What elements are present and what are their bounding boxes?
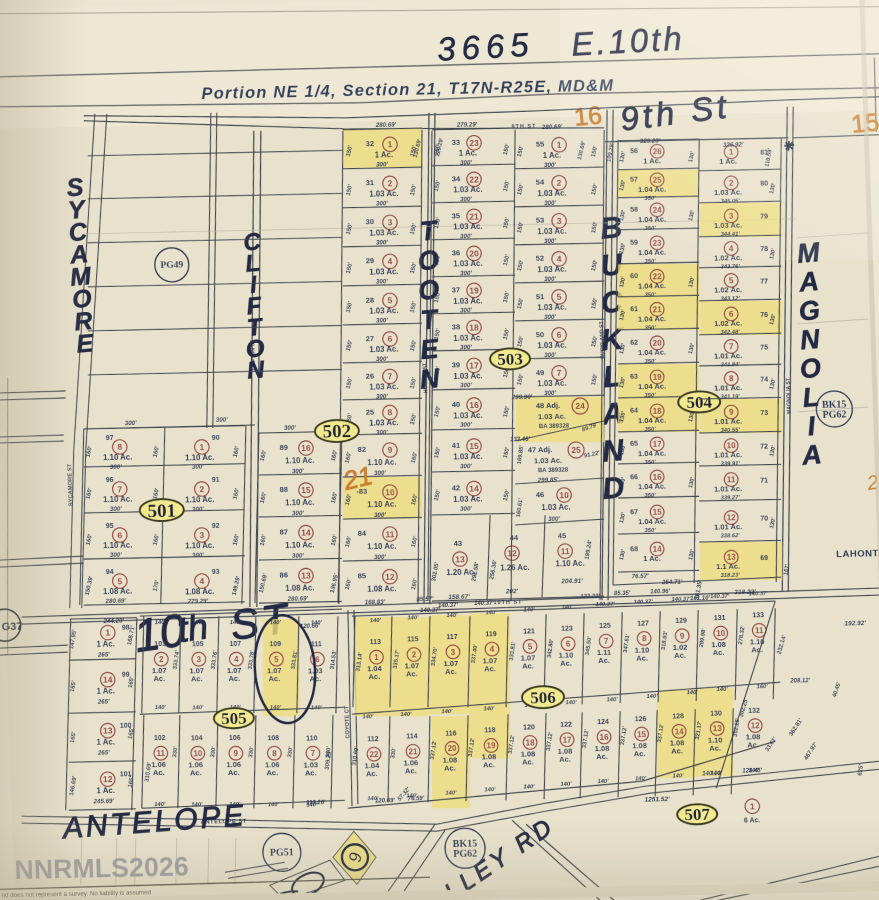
svg-text:341.19': 341.19': [721, 394, 741, 400]
svg-text:30: 30: [366, 217, 375, 226]
svg-text:1 Ac.: 1 Ac.: [375, 150, 394, 159]
svg-text:504: 504: [686, 393, 713, 413]
svg-text:10: 10: [193, 749, 203, 758]
svg-text:1.01 Ac.: 1.01 Ac.: [714, 417, 742, 427]
svg-text:1.03 Ac.: 1.03 Ac.: [541, 503, 570, 513]
svg-text:6: 6: [557, 330, 562, 340]
svg-text:108: 108: [267, 735, 279, 742]
svg-text:G: G: [797, 295, 821, 327]
svg-text:1.08 Ac.: 1.08 Ac.: [367, 584, 396, 594]
svg-text:7: 7: [311, 749, 316, 758]
svg-text:300': 300': [544, 314, 557, 321]
svg-text:7: 7: [604, 637, 609, 646]
svg-text:300': 300': [110, 506, 123, 513]
svg-text:Ac.: Ac.: [191, 674, 203, 683]
svg-text:109: 109: [269, 641, 281, 648]
svg-text:10: 10: [385, 487, 395, 497]
svg-text:1: 1: [750, 801, 755, 811]
svg-text:1.03 Ac.: 1.03 Ac.: [453, 259, 482, 269]
svg-text:Ac.: Ac.: [153, 768, 165, 777]
svg-text:88: 88: [279, 485, 288, 494]
svg-text:Ac.: Ac.: [596, 752, 608, 761]
svg-text:124: 124: [597, 719, 609, 726]
svg-text:140': 140': [606, 697, 618, 703]
svg-text:1.03 Ac.: 1.03 Ac.: [369, 189, 398, 199]
svg-text:9: 9: [680, 632, 685, 641]
svg-text:505: 505: [221, 709, 247, 729]
svg-text:21: 21: [408, 747, 418, 756]
svg-text:61: 61: [630, 306, 638, 313]
svg-text:350': 350': [644, 528, 656, 534]
svg-text:62: 62: [630, 340, 638, 347]
svg-text:279.29': 279.29': [187, 598, 209, 605]
svg-text:11: 11: [560, 546, 570, 556]
svg-text:1.03 Ac.: 1.03 Ac.: [369, 418, 398, 428]
svg-text:PG62: PG62: [822, 409, 846, 420]
svg-text:25: 25: [366, 407, 375, 416]
svg-text:Ac.: Ac.: [484, 664, 496, 673]
svg-text:53: 53: [536, 216, 545, 225]
svg-text:140.37': 140.37': [749, 591, 769, 597]
svg-text:16: 16: [653, 473, 663, 482]
svg-text:140': 140': [370, 618, 382, 624]
svg-text:1.01 Ac.: 1.01 Ac.: [714, 484, 742, 494]
svg-text:300': 300': [460, 463, 473, 470]
svg-text:140': 140': [484, 787, 496, 793]
svg-text:113: 113: [370, 639, 382, 646]
svg-text:15: 15: [469, 441, 479, 451]
svg-text:18: 18: [526, 738, 536, 747]
svg-text:COYOTE CT: COYOTE CT: [344, 705, 351, 738]
svg-text:343.76': 343.76': [721, 264, 741, 270]
svg-text:105: 105: [192, 641, 204, 648]
svg-text:122: 122: [560, 721, 572, 728]
svg-text:41: 41: [452, 441, 461, 450]
svg-text:8: 8: [729, 374, 734, 383]
svg-text:13: 13: [727, 553, 737, 562]
svg-text:127: 127: [637, 620, 649, 627]
svg-text:300': 300': [544, 200, 557, 207]
svg-text:35: 35: [452, 211, 461, 220]
svg-text:300': 300': [460, 344, 473, 351]
svg-text:1 Ac.: 1 Ac.: [96, 786, 115, 795]
svg-text:1: 1: [199, 442, 204, 452]
svg-text:350': 350': [645, 292, 657, 298]
svg-text:7: 7: [387, 371, 392, 381]
svg-text:300': 300': [192, 506, 205, 513]
svg-text:300': 300': [284, 425, 297, 432]
svg-text:13: 13: [301, 571, 311, 581]
svg-text:300': 300': [376, 278, 389, 285]
svg-text:119: 119: [485, 631, 497, 638]
svg-text:11: 11: [156, 749, 165, 758]
svg-text:300': 300': [460, 270, 473, 277]
svg-text:1.04 Ac.: 1.04 Ac.: [638, 482, 666, 492]
svg-text:116: 116: [445, 730, 457, 737]
svg-text:1251.52': 1251.52': [644, 796, 670, 804]
svg-text:85.57': 85.57': [416, 596, 434, 603]
svg-text:19: 19: [653, 373, 663, 382]
svg-text:339.27': 339.27': [721, 495, 741, 501]
svg-text:1.10 Ac.: 1.10 Ac.: [103, 453, 132, 463]
svg-text:140.37': 140.37': [420, 608, 441, 614]
svg-text:19: 19: [486, 741, 496, 750]
svg-text:1.04 Ac.: 1.04 Ac.: [638, 449, 666, 459]
svg-text:1.04 Ac.: 1.04 Ac.: [638, 517, 666, 527]
svg-text:1 Ac.: 1 Ac.: [543, 151, 562, 160]
svg-text:300': 300': [544, 162, 557, 169]
svg-text:13: 13: [103, 726, 113, 736]
svg-text:140': 140': [565, 700, 577, 706]
svg-text:1.10 Ac.: 1.10 Ac.: [555, 559, 584, 569]
svg-text:O: O: [798, 352, 822, 384]
svg-text:300': 300': [544, 352, 557, 359]
svg-text:10: 10: [716, 629, 726, 638]
svg-text:1: 1: [387, 139, 392, 149]
svg-text:350': 350': [644, 493, 656, 499]
svg-text:1 Ac.: 1 Ac.: [643, 554, 661, 563]
svg-text:140': 140': [646, 694, 658, 700]
svg-text:140': 140': [270, 620, 282, 626]
svg-text:300': 300': [460, 196, 473, 203]
svg-text:93: 93: [212, 569, 220, 576]
svg-text:300': 300': [292, 552, 305, 559]
svg-text:104: 104: [191, 735, 203, 742]
svg-text:Ac.: Ac.: [560, 659, 572, 668]
svg-text:BA 389328: BA 389328: [538, 468, 569, 475]
svg-text:1.01 Ac.: 1.01 Ac.: [714, 450, 742, 460]
svg-text:72: 72: [760, 443, 768, 450]
svg-text:11: 11: [727, 475, 736, 484]
svg-text:34: 34: [452, 174, 461, 183]
svg-text:15: 15: [301, 485, 311, 495]
svg-text:A: A: [797, 266, 820, 298]
svg-text:70: 70: [760, 515, 768, 522]
svg-text:32: 32: [366, 139, 375, 148]
svg-text:17: 17: [469, 360, 479, 370]
svg-text:280.69': 280.69': [375, 122, 397, 129]
svg-text:86: 86: [280, 571, 289, 580]
svg-text:300': 300': [374, 554, 387, 561]
svg-text:82: 82: [358, 445, 367, 454]
svg-text:74: 74: [760, 376, 768, 383]
svg-text:21: 21: [653, 305, 663, 314]
svg-text:7: 7: [557, 368, 562, 378]
svg-text:342.48': 342.48': [720, 330, 740, 336]
svg-text:300': 300': [376, 356, 389, 363]
svg-text:67: 67: [630, 509, 638, 516]
svg-text:Ac.: Ac.: [405, 766, 417, 775]
svg-text:122.23': 122.23': [580, 594, 601, 600]
svg-text:343.12': 343.12': [720, 296, 740, 302]
svg-text:1.10 Ac.: 1.10 Ac.: [103, 541, 132, 551]
svg-text:1.04 Ac.: 1.04 Ac.: [638, 382, 666, 392]
svg-text:4: 4: [199, 576, 204, 586]
svg-text:115: 115: [407, 636, 419, 643]
svg-text:22: 22: [653, 272, 663, 281]
svg-text:1.10 Ac.: 1.10 Ac.: [285, 498, 314, 508]
svg-text:140.37': 140.37': [710, 594, 730, 600]
svg-text:97: 97: [106, 435, 114, 442]
svg-text:24: 24: [575, 401, 585, 411]
svg-text:300': 300': [292, 468, 305, 475]
svg-text:Ac.: Ac.: [636, 653, 648, 662]
svg-text:Ac.: Ac.: [598, 656, 610, 665]
svg-text:84: 84: [358, 529, 367, 538]
svg-text:208.12': 208.12': [789, 678, 811, 684]
svg-text:20: 20: [653, 339, 663, 348]
svg-text:1.03 Ac.: 1.03 Ac.: [369, 345, 398, 355]
svg-text:1.03 Ac.: 1.03 Ac.: [537, 303, 566, 313]
svg-text:244.29': 244.29': [102, 618, 124, 625]
svg-text:5: 5: [528, 642, 533, 651]
svg-text:54: 54: [536, 178, 545, 187]
svg-text:85.35': 85.35': [614, 591, 631, 597]
svg-text:1.03 Ac.: 1.03 Ac.: [453, 494, 482, 504]
svg-text:17: 17: [562, 735, 572, 744]
svg-text:9: 9: [233, 749, 238, 758]
svg-text:1.08 Ac.: 1.08 Ac.: [285, 583, 314, 593]
svg-text:338.62': 338.62': [720, 533, 740, 539]
svg-text:300': 300': [110, 552, 123, 559]
svg-text:350': 350': [644, 427, 656, 433]
svg-text:42: 42: [452, 483, 461, 492]
svg-text:1.01 Ac.: 1.01 Ac.: [714, 383, 742, 393]
svg-text:280.69': 280.69': [287, 595, 309, 602]
svg-text:265': 265': [97, 699, 111, 706]
svg-text:107: 107: [229, 641, 241, 648]
svg-text:1.04 Ac.: 1.04 Ac.: [638, 281, 666, 291]
svg-text:5: 5: [387, 295, 392, 305]
svg-text:119.26': 119.26': [306, 800, 326, 806]
svg-text:1.03 Ac.: 1.03 Ac.: [453, 452, 482, 462]
svg-text:300': 300': [192, 464, 205, 471]
svg-text:133.46': 133.46': [510, 437, 531, 443]
svg-text:299.90': 299.90': [511, 394, 533, 401]
svg-text:1: 1: [374, 653, 379, 662]
svg-text:279.29': 279.29': [456, 122, 478, 129]
svg-text:73: 73: [760, 410, 768, 417]
svg-text:1.10 Ac.: 1.10 Ac.: [185, 541, 214, 551]
svg-text:300': 300': [460, 382, 473, 389]
svg-text:3: 3: [387, 217, 392, 227]
svg-text:350': 350': [645, 325, 657, 331]
svg-text:192.92': 192.92': [844, 620, 866, 627]
svg-text:506: 506: [530, 688, 556, 708]
svg-text:1.03 Ac.: 1.03 Ac.: [453, 333, 482, 343]
svg-text:55: 55: [536, 140, 545, 149]
svg-text:3665: 3665: [436, 25, 536, 67]
svg-text:94: 94: [106, 569, 114, 576]
svg-text:339.91': 339.91': [721, 461, 741, 467]
svg-text:14: 14: [103, 675, 113, 685]
svg-text:245.69': 245.69': [92, 798, 114, 805]
svg-text:29: 29: [366, 256, 375, 265]
svg-text:140': 140': [155, 620, 167, 626]
svg-text:118: 118: [484, 727, 496, 734]
svg-text:501: 501: [147, 500, 176, 522]
svg-text:47 Adj.: 47 Adj.: [528, 445, 553, 454]
svg-text:6: 6: [729, 310, 734, 319]
svg-text:102: 102: [154, 735, 166, 742]
svg-text:76: 76: [760, 312, 768, 319]
svg-text:132: 132: [748, 708, 760, 715]
svg-text:Ac.: Ac.: [228, 768, 240, 777]
svg-text:1 Ac.: 1 Ac.: [459, 149, 478, 158]
svg-text:140.37': 140.37': [671, 597, 691, 603]
svg-text:1.10 Ac.: 1.10 Ac.: [285, 540, 314, 550]
svg-text:131: 131: [714, 615, 726, 622]
svg-text:6: 6: [117, 530, 122, 540]
svg-text:106: 106: [229, 735, 241, 742]
svg-text:300': 300': [376, 393, 389, 400]
svg-text:1.03 Ac.: 1.03 Ac.: [369, 382, 398, 392]
svg-text:1.03 Ac.: 1.03 Ac.: [534, 456, 562, 466]
svg-text:27: 27: [366, 334, 375, 343]
svg-text:68: 68: [630, 546, 638, 553]
svg-text:45: 45: [558, 531, 567, 540]
svg-text:1.04 Ac.: 1.04 Ac.: [638, 416, 666, 426]
svg-text:1.03 Ac.: 1.03 Ac.: [538, 412, 566, 422]
svg-text:1.10 Ac.: 1.10 Ac.: [285, 456, 314, 466]
svg-text:A: A: [800, 439, 823, 471]
svg-text:51: 51: [536, 292, 545, 301]
svg-text:140.37': 140.37': [633, 599, 653, 605]
svg-text:46: 46: [536, 490, 545, 499]
svg-text:117: 117: [446, 634, 458, 641]
svg-text:1.10 Ac.: 1.10 Ac.: [367, 458, 396, 468]
svg-text:350': 350': [644, 460, 656, 466]
svg-text:125: 125: [599, 623, 611, 630]
svg-text:63: 63: [630, 374, 638, 381]
svg-text:1.03 Ac.: 1.03 Ac.: [369, 228, 398, 238]
svg-text:52: 52: [536, 254, 545, 263]
svg-text:350': 350': [645, 359, 657, 365]
svg-text:5: 5: [117, 576, 122, 586]
svg-text:140': 140': [407, 615, 419, 621]
svg-text:140': 140': [560, 782, 572, 788]
svg-text:2: 2: [412, 650, 417, 659]
svg-text:25: 25: [571, 445, 581, 455]
svg-text:2: 2: [199, 484, 204, 494]
svg-text:2: 2: [387, 178, 392, 188]
svg-text:120: 120: [523, 724, 535, 731]
svg-text:1.1 Ac.: 1.1 Ac.: [716, 562, 740, 571]
svg-text:15: 15: [653, 508, 663, 517]
svg-text:1: 1: [105, 628, 110, 638]
svg-text:76.59': 76.59': [408, 796, 425, 802]
svg-text:123: 123: [561, 626, 573, 633]
svg-text:140': 140': [686, 690, 698, 696]
svg-text:300': 300': [376, 429, 389, 436]
svg-text:1.02 Ac.: 1.02 Ac.: [714, 285, 742, 295]
svg-text:1.20 Ac.: 1.20 Ac.: [446, 568, 475, 578]
svg-text:300': 300': [460, 160, 473, 167]
svg-text:Ac.: Ac.: [266, 768, 278, 777]
svg-text:300': 300': [110, 464, 123, 471]
svg-text:140': 140': [716, 687, 728, 693]
svg-text:300': 300': [460, 307, 473, 314]
svg-text:LAHONTAN: LAHONTAN: [836, 548, 879, 560]
svg-text:140': 140': [445, 790, 457, 796]
svg-text:66: 66: [630, 474, 638, 481]
svg-text:N: N: [246, 356, 267, 385]
svg-text:265': 265': [97, 651, 111, 658]
svg-text:Ac.: Ac.: [406, 669, 418, 678]
svg-text:Ac.: Ac.: [444, 763, 456, 772]
svg-text:140.37': 140.37': [474, 601, 495, 607]
svg-text:L: L: [801, 382, 820, 413]
svg-text:23: 23: [469, 138, 479, 148]
svg-text:11: 11: [385, 529, 395, 539]
svg-text:300': 300': [376, 200, 389, 207]
svg-text:Ac.: Ac.: [709, 743, 721, 752]
svg-text:Ac.: Ac.: [368, 672, 380, 681]
svg-text:1.10 Ac.: 1.10 Ac.: [185, 495, 214, 505]
svg-text:64: 64: [630, 408, 638, 415]
svg-text:503: 503: [497, 350, 523, 370]
svg-text:300': 300': [125, 420, 138, 427]
svg-text:168.83': 168.83': [365, 599, 386, 606]
svg-text:1.03 Ac.: 1.03 Ac.: [453, 371, 482, 381]
svg-text:1.03 Ac.: 1.03 Ac.: [453, 222, 482, 232]
svg-text:6: 6: [387, 334, 392, 344]
svg-text:65: 65: [630, 441, 638, 448]
svg-text:265': 265': [97, 750, 111, 757]
svg-text:350': 350': [644, 393, 656, 399]
svg-text:36: 36: [452, 248, 461, 257]
svg-text:140.10': 140.10': [702, 771, 723, 777]
svg-text:1.08 Ac.: 1.08 Ac.: [185, 587, 214, 597]
svg-text:140': 140': [192, 705, 204, 711]
svg-text:1.03 Ac.: 1.03 Ac.: [369, 306, 398, 316]
svg-text:Ac.: Ac.: [445, 667, 457, 676]
svg-text:Ac.: Ac.: [190, 768, 202, 777]
svg-text:Ac.: Ac.: [674, 651, 686, 660]
svg-text:22: 22: [369, 750, 379, 759]
svg-text:140': 140': [561, 605, 573, 611]
svg-text:60: 60: [630, 273, 638, 280]
svg-text:10: 10: [727, 441, 737, 450]
svg-text:48 Adj.: 48 Adj.: [536, 401, 561, 410]
svg-text:Ac.: Ac.: [153, 674, 165, 683]
svg-text:Ac.: Ac.: [671, 746, 683, 755]
svg-text:50: 50: [536, 330, 545, 339]
svg-text:Ac.: Ac.: [559, 755, 571, 764]
svg-text:9TH ST: 9TH ST: [511, 124, 536, 131]
svg-text:85: 85: [358, 572, 367, 581]
svg-text:7: 7: [117, 484, 122, 494]
svg-text:1.01 Ac.: 1.01 Ac.: [714, 351, 742, 361]
svg-text:300': 300': [460, 233, 473, 240]
svg-text:21: 21: [469, 211, 479, 221]
svg-text:300': 300': [544, 238, 557, 245]
svg-text:12: 12: [103, 774, 113, 784]
svg-text:300': 300': [292, 510, 305, 517]
svg-text:1.03 Ac.: 1.03 Ac.: [369, 267, 398, 277]
svg-text:502: 502: [322, 421, 351, 443]
svg-text:39: 39: [452, 360, 461, 369]
svg-text:300': 300': [376, 161, 389, 168]
svg-text:95: 95: [106, 523, 114, 530]
svg-text:4: 4: [490, 645, 495, 654]
svg-text:121: 121: [523, 628, 535, 635]
svg-text:12: 12: [507, 548, 517, 558]
svg-text:69: 69: [760, 555, 768, 562]
svg-text:14: 14: [675, 727, 685, 736]
svg-text:16: 16: [599, 733, 609, 742]
svg-text:140.96': 140.96': [650, 589, 671, 595]
